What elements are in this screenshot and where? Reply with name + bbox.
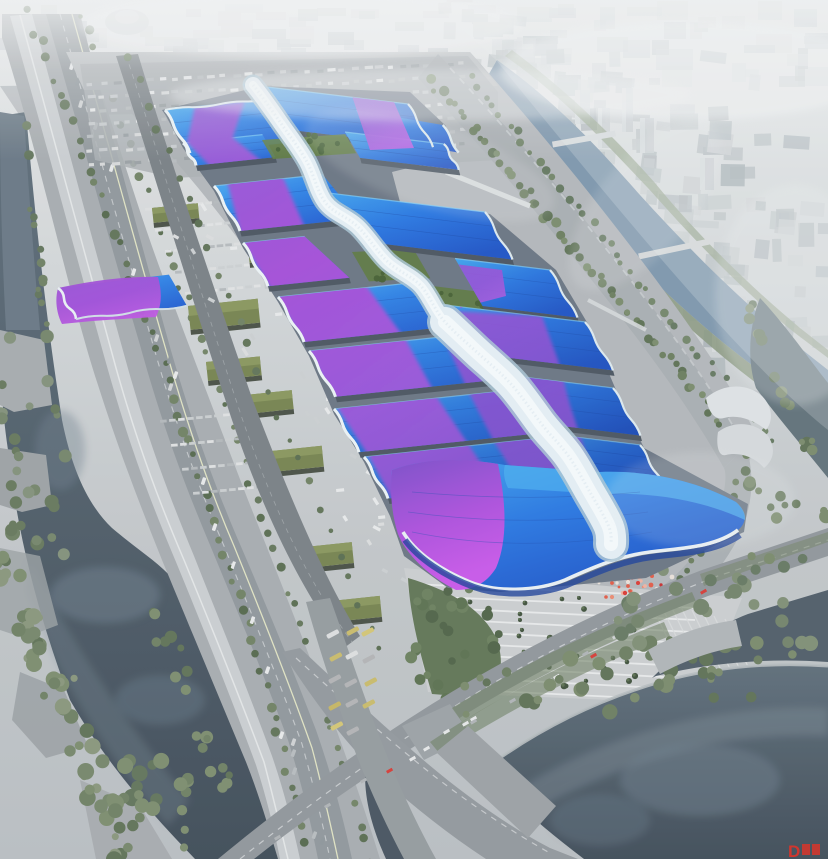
svg-text:D: D (788, 842, 800, 859)
